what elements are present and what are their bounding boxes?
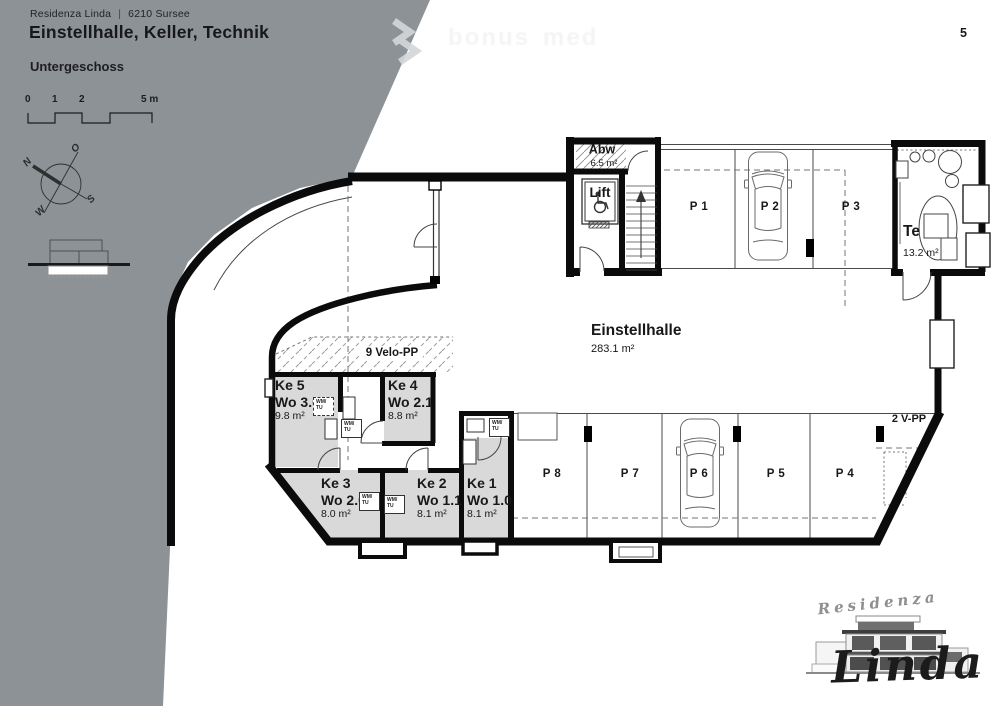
watermark-chevrons-icon bbox=[394, 21, 416, 62]
wm-line2: TU bbox=[316, 405, 333, 411]
watermark-word-1: bonus bbox=[448, 24, 530, 52]
room-einstellhalle-name: Einstellhalle bbox=[591, 323, 681, 339]
room-ke2-unit: Wo 1.1 bbox=[417, 493, 462, 508]
room-ke3-area: 8.0 m² bbox=[321, 509, 351, 520]
room-ke3-name: Ke 3 bbox=[321, 476, 351, 491]
brand-location: 6210 Sursee bbox=[128, 8, 190, 20]
room-abw-area: 6.5 m² bbox=[591, 159, 618, 169]
garage-gate bbox=[414, 181, 441, 284]
scale-tick-1: 1 bbox=[52, 95, 58, 106]
scale-tick-5: 5 m bbox=[141, 95, 158, 106]
washer-dryer-box: WM/ TU bbox=[489, 418, 510, 437]
room-ke2-area: 8.1 m² bbox=[417, 509, 447, 520]
brand-separator: | bbox=[118, 8, 121, 20]
vpp-parking-label: 2 V-PP bbox=[890, 414, 928, 426]
parking-p4-label: P 4 bbox=[836, 468, 855, 480]
room-ke4-area: 8.8 m² bbox=[388, 411, 418, 422]
wm-line2: TU bbox=[344, 427, 361, 433]
room-ke1-area: 8.1 m² bbox=[467, 509, 497, 520]
room-ke4-unit: Wo 2.1 bbox=[388, 395, 433, 410]
technic-equipment bbox=[896, 150, 962, 260]
room-ke5-area: 9.8 m² bbox=[275, 411, 305, 422]
room-te-name: Te bbox=[903, 224, 920, 240]
logo-script-linda: Linda bbox=[830, 637, 986, 693]
room-abw-name: Abw bbox=[589, 143, 615, 156]
page-subtitle: Untergeschoss bbox=[30, 60, 124, 74]
building-section-icon bbox=[28, 240, 130, 277]
floorplan-page: Residenza Linda|6210 Sursee Einstellhall… bbox=[0, 0, 1000, 706]
room-ke5-name: Ke 5 bbox=[275, 378, 305, 393]
parking-p6-label: P 6 bbox=[690, 468, 709, 480]
washer-dryer-box: WM/ TU bbox=[384, 495, 405, 514]
room-ke1-unit: Wo 1.0 bbox=[467, 493, 512, 508]
room-ke4-name: Ke 4 bbox=[388, 378, 418, 393]
parking-p5-label: P 5 bbox=[767, 468, 786, 480]
room-lift-name: Lift bbox=[590, 186, 611, 200]
velo-parking-label: 9 Velo-PP bbox=[361, 346, 423, 360]
brand-name: Residenza Linda bbox=[30, 8, 111, 20]
parking-p3-label: P 3 bbox=[842, 201, 861, 213]
washer-dryer-box: WM/ TU bbox=[359, 492, 380, 511]
page-title: Einstellhalle, Keller, Technik bbox=[29, 23, 269, 41]
shaft-box bbox=[518, 413, 557, 440]
wm-line2: TU bbox=[387, 503, 404, 509]
stairs-up-arrow bbox=[636, 190, 646, 202]
scale-tick-0: 0 bbox=[25, 95, 31, 106]
room-einstellhalle-area: 283.1 m² bbox=[591, 344, 634, 356]
parking-p1-label: P 1 bbox=[690, 201, 709, 213]
washer-dryer-box: WM/ TU bbox=[313, 397, 334, 416]
parking-p7-label: P 7 bbox=[621, 468, 640, 480]
room-te-area: 13.2 m² bbox=[903, 248, 939, 259]
compass-icon bbox=[33, 152, 87, 213]
page-number: 5 bbox=[960, 27, 967, 40]
parking-p2-label: P 2 bbox=[761, 201, 780, 213]
washer-dryer-box: WM/ TU bbox=[341, 419, 362, 438]
wm-line2: TU bbox=[492, 426, 509, 432]
brand-line: Residenza Linda|6210 Sursee bbox=[30, 9, 190, 20]
parking-p8-label: P 8 bbox=[543, 468, 562, 480]
wm-line2: TU bbox=[362, 500, 379, 506]
scale-tick-2: 2 bbox=[79, 95, 85, 106]
scale-bar bbox=[28, 113, 152, 123]
room-ke1-name: Ke 1 bbox=[467, 476, 497, 491]
watermark-word-2: med bbox=[543, 24, 598, 52]
room-ke2-name: Ke 2 bbox=[417, 476, 447, 491]
